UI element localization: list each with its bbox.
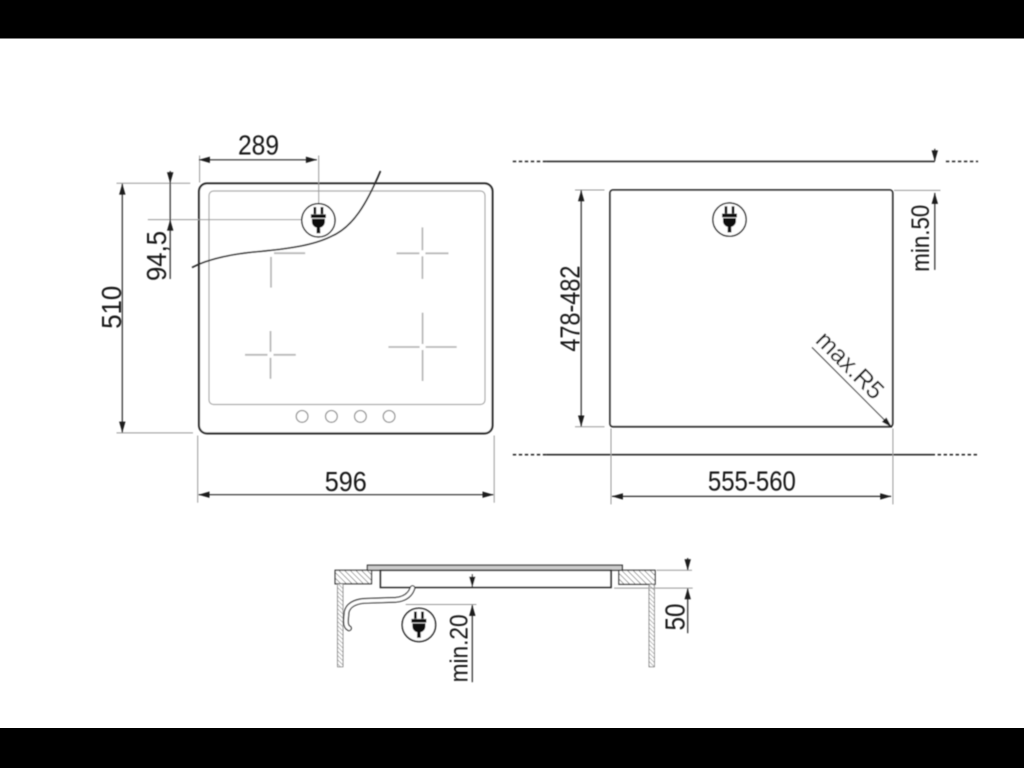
svg-text:596: 596 bbox=[325, 466, 367, 497]
svg-text:555-560: 555-560 bbox=[708, 466, 796, 497]
svg-text:289: 289 bbox=[238, 129, 279, 160]
svg-text:94,5: 94,5 bbox=[141, 231, 172, 281]
svg-text:510: 510 bbox=[96, 286, 127, 329]
svg-text:min.50: min.50 bbox=[907, 205, 935, 272]
svg-text:478-482: 478-482 bbox=[555, 266, 586, 352]
svg-text:50: 50 bbox=[659, 604, 690, 631]
svg-text:min.20: min.20 bbox=[446, 614, 474, 682]
